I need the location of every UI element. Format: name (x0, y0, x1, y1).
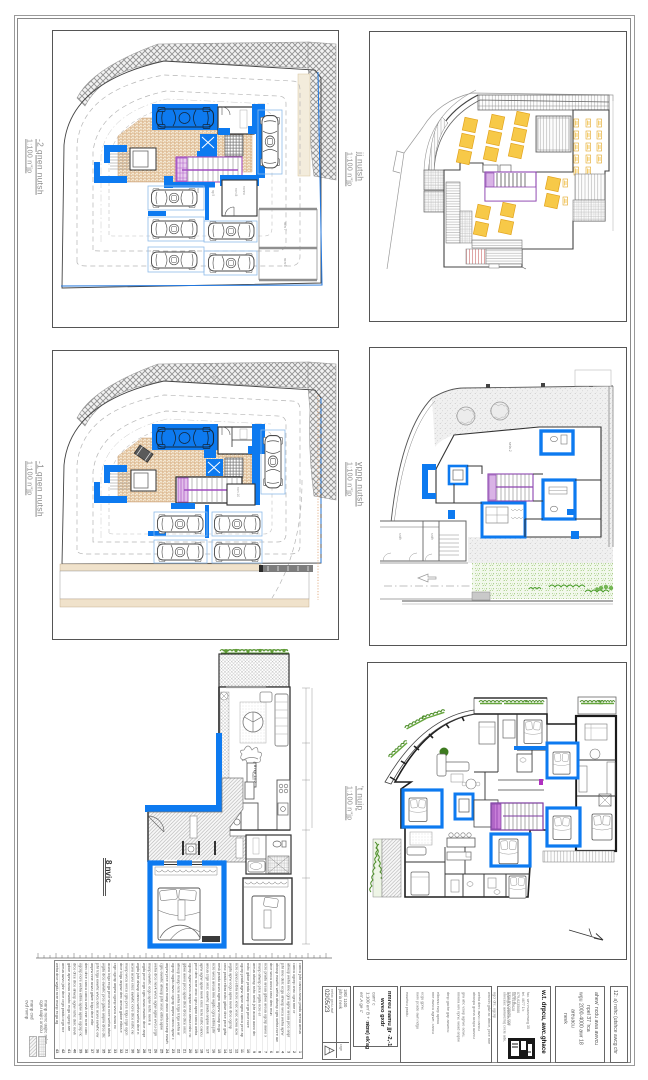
svg-text:ncn 7: ncn 7 (283, 222, 287, 231)
svg-text:salon: salon (251, 772, 255, 780)
svg-text:1: 1 (328, 1049, 331, 1055)
svg-text:np 5: np 5 (211, 190, 215, 196)
svg-text:sela 2: sela 2 (508, 442, 512, 452)
svg-text:ncn: ncn (196, 188, 200, 193)
svg-text:ncnnc: ncnnc (242, 186, 246, 195)
svg-text:snifh: snifh (430, 533, 434, 540)
svg-text:snifh: snifh (398, 533, 402, 540)
svg-text:ncn 6: ncn 6 (283, 258, 287, 267)
svg-text:ncn 10: ncn 10 (236, 487, 240, 497)
svg-text:ncn 8: ncn 8 (234, 188, 238, 196)
